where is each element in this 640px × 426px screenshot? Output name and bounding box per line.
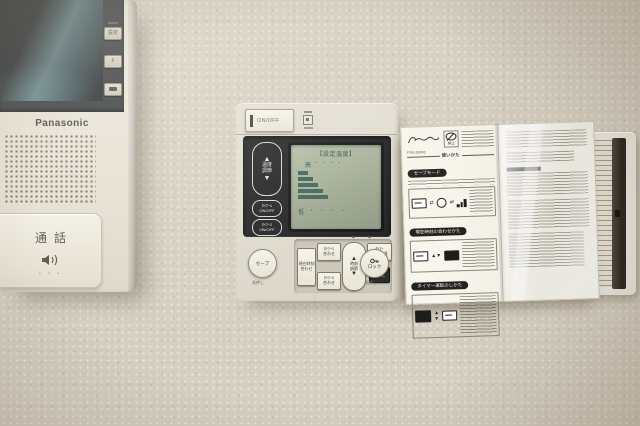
lcd-display: 【設定温度】 高 - - - - 低 ・ ・ ・ ・: [291, 145, 381, 229]
temperature-rocker[interactable]: ▲ 温度 調節 ▼: [252, 142, 282, 196]
paragraph-lines: [507, 171, 589, 196]
timer2-on-off-button[interactable]: ﾀｲﾏｰ2 ON/OFF: [252, 219, 282, 236]
panasonic-logo: Panasonic: [0, 118, 124, 129]
clock-set-button[interactable]: 現在時刻 合わせ: [297, 248, 316, 286]
diagram-button-icon: [413, 251, 428, 261]
speaker-grille: [4, 134, 96, 205]
diagram-lcd-icon: [415, 310, 431, 322]
lock-label: ロック: [368, 264, 382, 270]
prohibition-icon: [445, 132, 456, 140]
section-clock-header: 現在時刻の合わせかた: [409, 227, 466, 237]
lcd-low-dots: ・ ・ ・ ・: [309, 207, 347, 214]
mode-indicator: [302, 111, 314, 129]
talk-panel-dots: • • •: [0, 271, 101, 277]
fine-print-block: [461, 130, 493, 147]
faceplate-seam: [236, 134, 398, 135]
diagram-bars-icon: [457, 198, 467, 207]
button-label-mark: [108, 22, 118, 24]
diagram-button-icon: [442, 310, 457, 320]
save-button[interactable]: セーブ: [248, 249, 277, 278]
time-down-arrow[interactable]: ▼: [351, 271, 357, 277]
lock-hold-hint: 長押し: [365, 280, 377, 286]
paragraph-lines: [508, 198, 590, 229]
timer1-label2: ON/OFF: [259, 209, 274, 214]
lock-button[interactable]: ロック: [360, 249, 389, 278]
instruction-card: FSR-200N3 禁止 使いかた セーブモード: [400, 121, 599, 305]
timer1-set-label2: 合わせ: [323, 252, 335, 257]
lcd-level-bar: [298, 183, 318, 187]
lcd-low-label: 低: [298, 207, 304, 216]
section-save-header: セーブモード: [408, 169, 447, 178]
instruction-flap[interactable]: FSR-200N3 禁止 使いかた セーブモード: [398, 124, 602, 312]
function-icon: [109, 87, 117, 91]
diagram-clock-icon: [437, 198, 447, 208]
lcd-level-bar: [298, 195, 328, 199]
paragraph-lines: [506, 151, 574, 163]
paragraph-lines: [509, 231, 585, 267]
photo-of-wall-devices: 設定 F Panasonic 通話 • • • ON/OFF: [0, 0, 640, 426]
usage-rule-left: [407, 155, 440, 157]
timer1-set-button[interactable]: ﾀｲﾏｰ1 合わせ: [317, 243, 341, 261]
step-text-lines: [462, 241, 495, 268]
brand-logo-script: [406, 135, 440, 145]
on-off-button[interactable]: ON/OFF: [245, 109, 294, 132]
lcd-level-bar: [298, 177, 313, 181]
indicator-mark: [304, 111, 312, 113]
intercom-unit: 設定 F Panasonic 通話 • • •: [0, 0, 137, 292]
lcd-frame: 【設定温度】 高 - - - - 低 ・ ・ ・ ・: [288, 142, 384, 232]
diagram-button-icon: [444, 250, 459, 260]
brand-block: FSR-200N3: [406, 131, 441, 155]
instruction-page-right: [497, 121, 600, 302]
prohibition-label: 禁止: [448, 141, 455, 146]
instruction-page-left: FSR-200N3 禁止 使いかた セーブモード: [400, 124, 503, 305]
diagram-button-icon: [411, 198, 426, 208]
intercom-screen-bezel: 設定 F: [0, 0, 124, 112]
lcd-level-bars: [298, 171, 338, 201]
sub-header-bar: [507, 167, 541, 172]
paragraph-lines: [505, 129, 586, 148]
lcd-high-dashes: - - - -: [315, 160, 342, 166]
clock-set-diagram: ▲▼: [410, 238, 498, 273]
intercom-side-edge: [128, 0, 137, 292]
timer2-set-button[interactable]: ﾀｲﾏｰ2 合わせ: [317, 272, 341, 290]
timer2-label2: ON/OFF: [259, 228, 274, 233]
speaker-waves-icon: [39, 252, 63, 268]
prohibition-box: 禁止: [443, 130, 459, 147]
diagram-caption-lines: [469, 189, 493, 214]
intercom-f-button[interactable]: F: [104, 55, 122, 68]
indicator-caption: [304, 127, 313, 129]
guide-arrows: ◀ ┈ ┈ ▶: [334, 234, 390, 239]
usage-header: 使いかた: [442, 152, 460, 159]
lcd-level-bar: [298, 171, 308, 175]
diagram-arrows-icon: ⇄: [450, 199, 454, 205]
intercom-function-button[interactable]: [104, 83, 122, 96]
save-label: セーブ: [256, 261, 269, 267]
temp-down-arrow[interactable]: ▼: [264, 175, 271, 182]
timer2-set-label2: 合わせ: [323, 281, 335, 286]
lcd-level-bar: [298, 189, 323, 193]
timer1-on-off-button[interactable]: ﾀｲﾏｰ1 ON/OFF: [252, 200, 282, 217]
faceplate-screws: • •: [310, 295, 324, 305]
heating-controller: ON/OFF ▲ 温度 調節 ▼ ﾀｲﾏｰ1 ON/OFF ﾀｲﾏｰ2 ON/O…: [236, 103, 398, 301]
on-off-label: ON/OFF: [257, 118, 280, 124]
intercom-settings-button[interactable]: 設定: [104, 27, 122, 40]
indicator-icon: [303, 115, 313, 125]
intercom-screen: [0, 0, 103, 101]
up-down-arrows-icon: ▲▼: [434, 310, 439, 322]
control-panel: ▲ 温度 調節 ▼ ﾀｲﾏｰ1 ON/OFF ﾀｲﾏｰ2 ON/OFF 【設定温…: [243, 136, 391, 237]
plate-dark-strip: [612, 138, 626, 289]
step-text-lines: [460, 295, 497, 334]
save-mode-diagram: ⇄ ⇄: [408, 186, 496, 219]
power-led: [250, 115, 253, 127]
usage-rule-right: [462, 154, 495, 156]
lcd-title: 【設定温度】: [291, 149, 381, 158]
save-hold-hint: 長押し: [252, 280, 264, 286]
lcd-high-label: 高: [305, 160, 311, 169]
talk-button[interactable]: 通話 • • •: [0, 213, 102, 288]
timer-operation-diagram: ▲▼: [411, 292, 499, 339]
diagram-arrows-icon: ⇄: [430, 200, 434, 206]
up-down-arrows-icon: ▲▼: [431, 253, 441, 259]
talk-button-label: 通話: [0, 229, 101, 246]
clock-set-label2: 合わせ: [301, 267, 313, 272]
section-timer-header: タイマー運転のしかた: [411, 281, 468, 291]
